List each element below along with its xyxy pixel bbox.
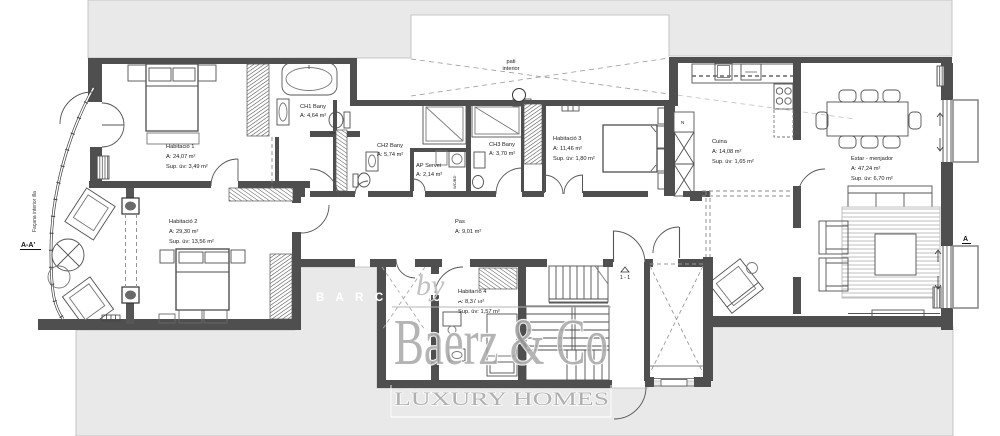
svg-text:Habitació 2: Habitació 2: [169, 219, 197, 225]
svg-text:A: 9,01 m²: A: 9,01 m²: [455, 229, 481, 235]
svg-text:Estar - menjador: Estar - menjador: [851, 156, 893, 162]
svg-text:A: 3,70 m²: A: 3,70 m²: [489, 151, 515, 157]
svg-text:Baerz & Co: Baerz & Co: [394, 306, 608, 379]
svg-text:1 - 1: 1 - 1: [620, 275, 630, 281]
svg-text:Habitació 1: Habitació 1: [166, 144, 194, 150]
svg-text:A: 2,14 m²: A: 2,14 m²: [416, 172, 442, 178]
svg-text:CH2 Bany: CH2 Bany: [377, 143, 403, 149]
svg-text:Sup. úv: 6,70 m²: Sup. úv: 6,70 m²: [851, 176, 893, 182]
svg-text:Cuina: Cuina: [712, 139, 728, 145]
svg-text:A: 5,74 m²: A: 5,74 m²: [377, 152, 403, 158]
svg-text:WC/BD: WC/BD: [452, 176, 457, 189]
svg-text:A: 47,24 m²: A: 47,24 m²: [851, 166, 881, 172]
svg-text:by: by: [416, 269, 445, 302]
svg-text:A: 14,08 m²: A: 14,08 m²: [712, 149, 742, 155]
svg-text:Façana interior illa: Façana interior illa: [32, 191, 38, 232]
svg-text:B A R C E L O N A: B A R C E L O N A: [316, 292, 485, 304]
svg-text:A: 4,64 m²: A: 4,64 m²: [300, 113, 326, 119]
svg-text:Sup. úv: 3,49 m²: Sup. úv: 3,49 m²: [166, 164, 208, 170]
svg-text:Pas: Pas: [455, 219, 465, 225]
svg-text:AP Servei: AP Servei: [416, 163, 441, 169]
svg-text:A: 24,07 m²: A: 24,07 m²: [166, 154, 196, 160]
svg-text:A: 11,46 m²: A: 11,46 m²: [553, 146, 582, 152]
svg-text:Sup. úv: 1,80 m²: Sup. úv: 1,80 m²: [553, 156, 595, 162]
svg-text:A: A: [963, 236, 968, 243]
svg-text:pati: pati: [506, 59, 515, 65]
svg-text:Sup. úv: 1,65 m²: Sup. úv: 1,65 m²: [712, 159, 754, 165]
svg-text:Habitació 3: Habitació 3: [553, 136, 581, 142]
svg-text:CH3 Bany: CH3 Bany: [489, 142, 515, 148]
svg-text:CH1 Bany: CH1 Bany: [300, 104, 326, 110]
svg-text:LUXURY HOMES: LUXURY HOMES: [394, 389, 609, 410]
svg-text:A-A': A-A': [21, 242, 35, 249]
svg-text:N: N: [681, 120, 684, 125]
svg-text:Sup. úv: 13,56 m²: Sup. úv: 13,56 m²: [169, 239, 214, 245]
svg-text:A: 29,30 m²: A: 29,30 m²: [169, 229, 199, 235]
svg-text:interior: interior: [502, 66, 519, 72]
